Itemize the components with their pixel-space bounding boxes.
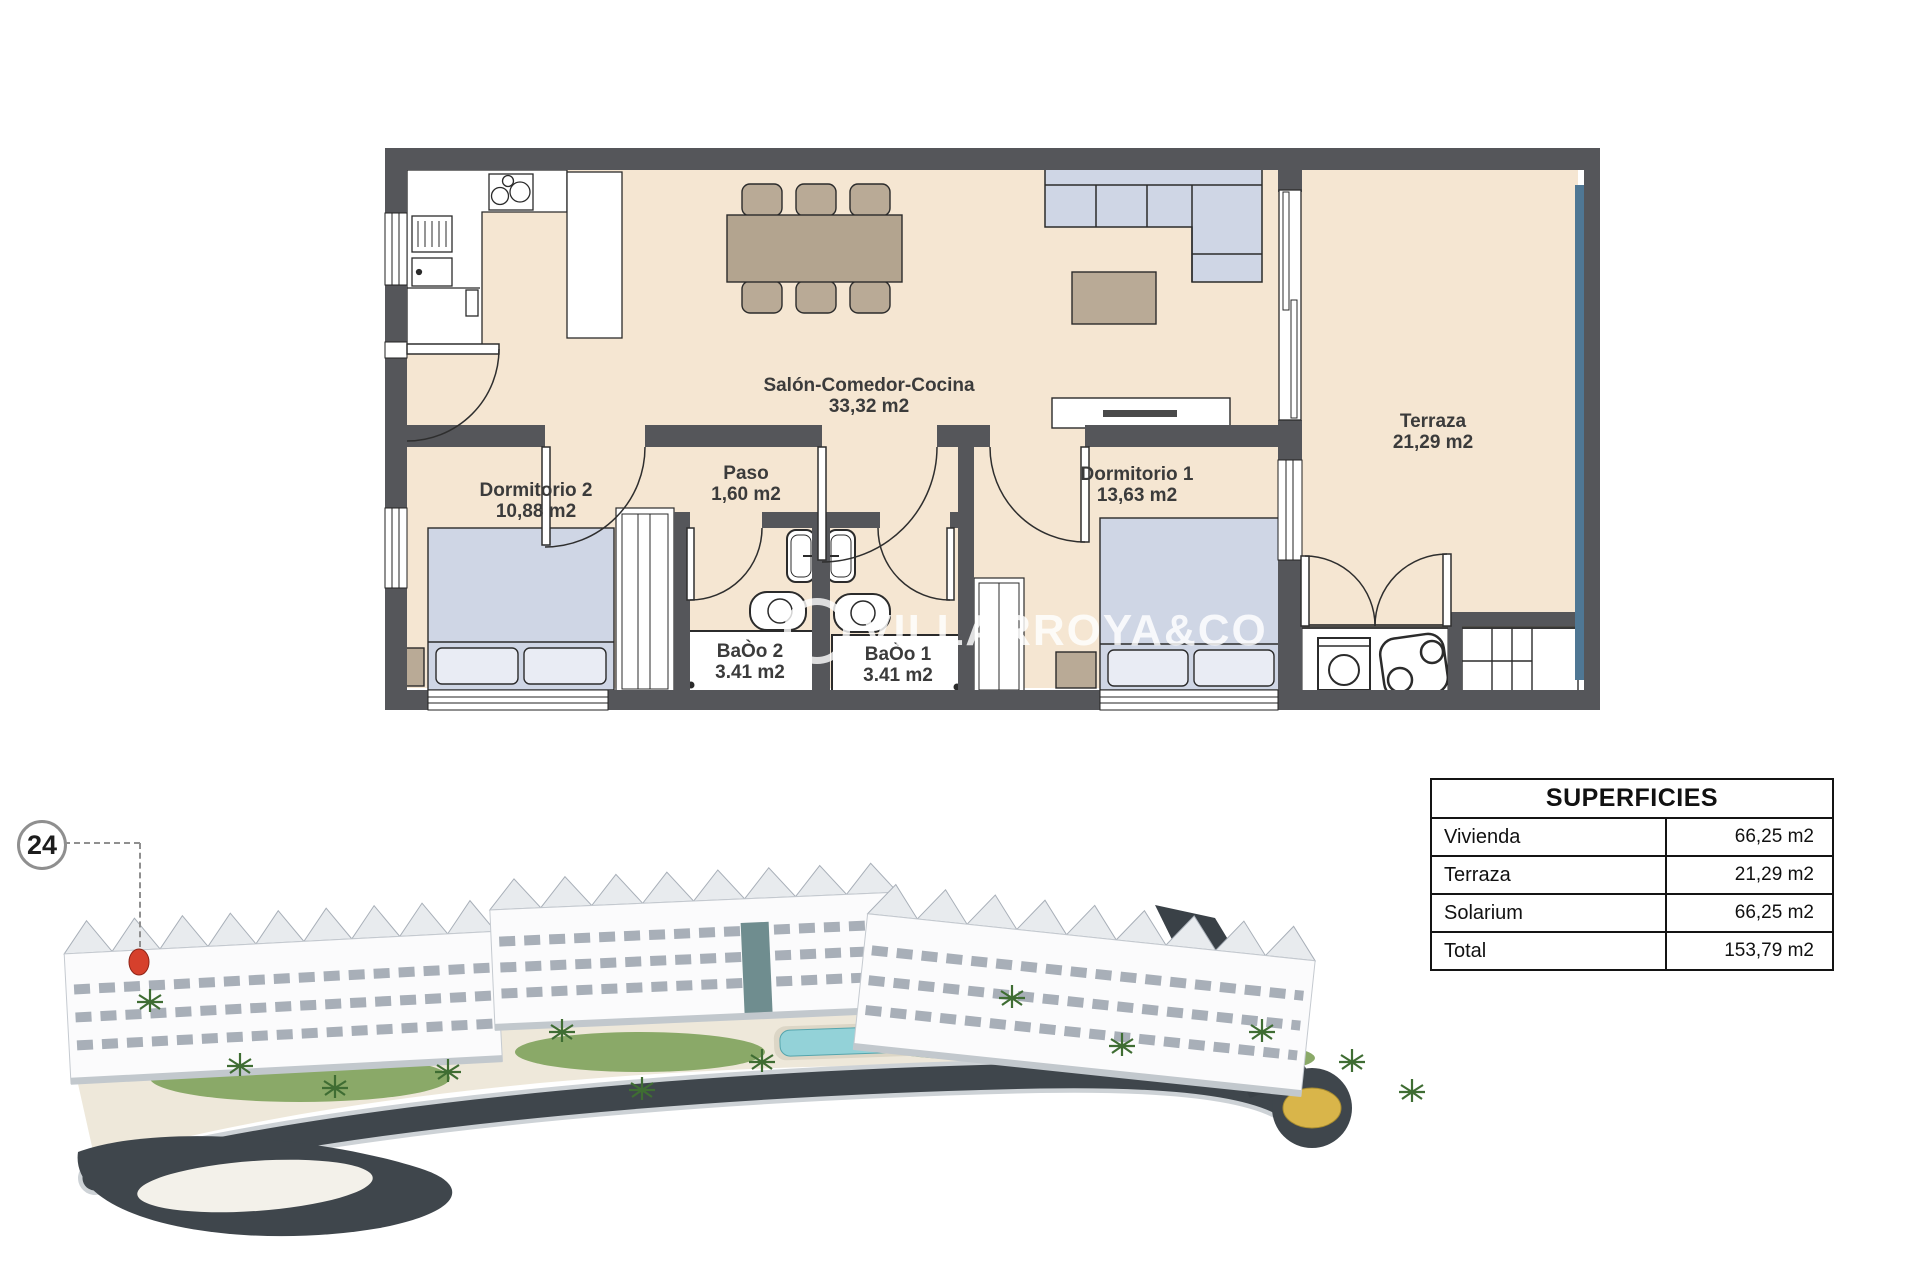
brochure-page: Salón-Comedor-Cocina 33,32 m2 Dormitorio… [0,0,1920,1280]
row-value: 21,29 m2 [1667,857,1832,893]
window [1278,460,1302,560]
dining-set [727,184,902,313]
toilet [750,592,806,630]
room-area: 3.41 m2 [715,662,785,683]
room-name: Terraza [1400,411,1466,432]
room-name: BaÒo 1 [865,644,932,665]
row-label: Terraza [1432,857,1667,893]
chair [850,281,890,313]
building-block-2 [489,862,903,1031]
row-label: Solarium [1432,895,1667,931]
callout-line-horizontal [64,842,140,844]
room-area: 1,60 m2 [711,484,781,505]
room-label-bano1: BaÒo 1 3.41 m2 [863,644,933,686]
building-block-1 [63,899,503,1084]
pillow [1194,650,1274,686]
table-title: SUPERFICIES [1432,780,1832,819]
room-area: 33,32 m2 [763,396,974,417]
fridge [466,290,478,316]
room-label-dormitorio2: Dormitorio 2 10,88 m2 [480,480,593,522]
pillow [524,648,606,684]
unit-location-marker [129,949,149,975]
table-row: Terraza 21,29 m2 [1432,857,1832,895]
superficies-table: SUPERFICIES Vivienda 66,25 m2 Terraza 21… [1430,778,1834,971]
room-label-bano2: BaÒo 2 3.41 m2 [715,641,785,683]
window [385,508,407,588]
dining-table [727,215,902,282]
chair [742,281,782,313]
stove [489,174,533,210]
door-leaf [1301,556,1309,626]
room-area: 3.41 m2 [863,665,933,686]
row-value: 66,25 m2 [1667,895,1832,931]
row-value: 153,79 m2 [1667,933,1832,969]
row-value: 66,25 m2 [1667,819,1832,855]
door-leaf [1443,554,1451,626]
room-name: Paso [723,463,768,484]
terraza-glass-rail [1575,185,1584,680]
door-leaf [947,528,954,600]
table-row: Solarium 66,25 m2 [1432,895,1832,933]
row-label: Total [1432,933,1667,969]
stairs [1462,628,1578,694]
table-row: Vivienda 66,25 m2 [1432,819,1832,857]
room-name: BaÒo 2 [717,641,784,662]
scene-canvas [0,0,1920,1280]
room-name: Dormitorio 2 [480,480,593,501]
tv-unit [1052,398,1230,428]
door-leaf [818,447,826,560]
door-leaf [407,344,499,354]
nightstand [1056,652,1096,688]
site-render [63,862,1425,1236]
room-name: Dormitorio 1 [1081,464,1194,485]
toilet [834,594,890,632]
chair [796,184,836,216]
row-label: Vivienda [1432,819,1667,855]
terraza-slider [1279,190,1301,420]
door-leaf [687,528,694,600]
room-area: 21,29 m2 [1393,432,1473,453]
coffee-table [1072,272,1156,324]
callout-line-vertical [139,843,141,947]
pillow [1108,650,1188,686]
chair [850,184,890,216]
window [428,690,608,710]
room-area: 10,88 m2 [480,501,593,522]
room-label-dormitorio1: Dormitorio 1 13,63 m2 [1081,464,1194,506]
room-label-terraza: Terraza 21,29 m2 [1393,411,1473,453]
unit-number: 24 [27,830,57,861]
laundry-area [1302,628,1450,700]
entrance-opening [385,342,407,358]
window [385,213,407,285]
unit-callout-badge: 24 [17,820,67,870]
room-name: Salón-Comedor-Cocina [763,375,974,396]
pillow [436,648,518,684]
window [1100,690,1278,710]
table-row: Total 153,79 m2 [1432,933,1832,969]
bedroom2-closet [616,508,674,695]
glass-core [741,922,773,1017]
room-area: 13,63 m2 [1081,485,1194,506]
chair [742,184,782,216]
room-label-paso: Paso 1,60 m2 [711,463,781,505]
kitchen-island [567,172,622,338]
bedroom1-closet [974,578,1024,695]
chair [796,281,836,313]
room-label-salon: Salón-Comedor-Cocina 33,32 m2 [763,375,974,417]
